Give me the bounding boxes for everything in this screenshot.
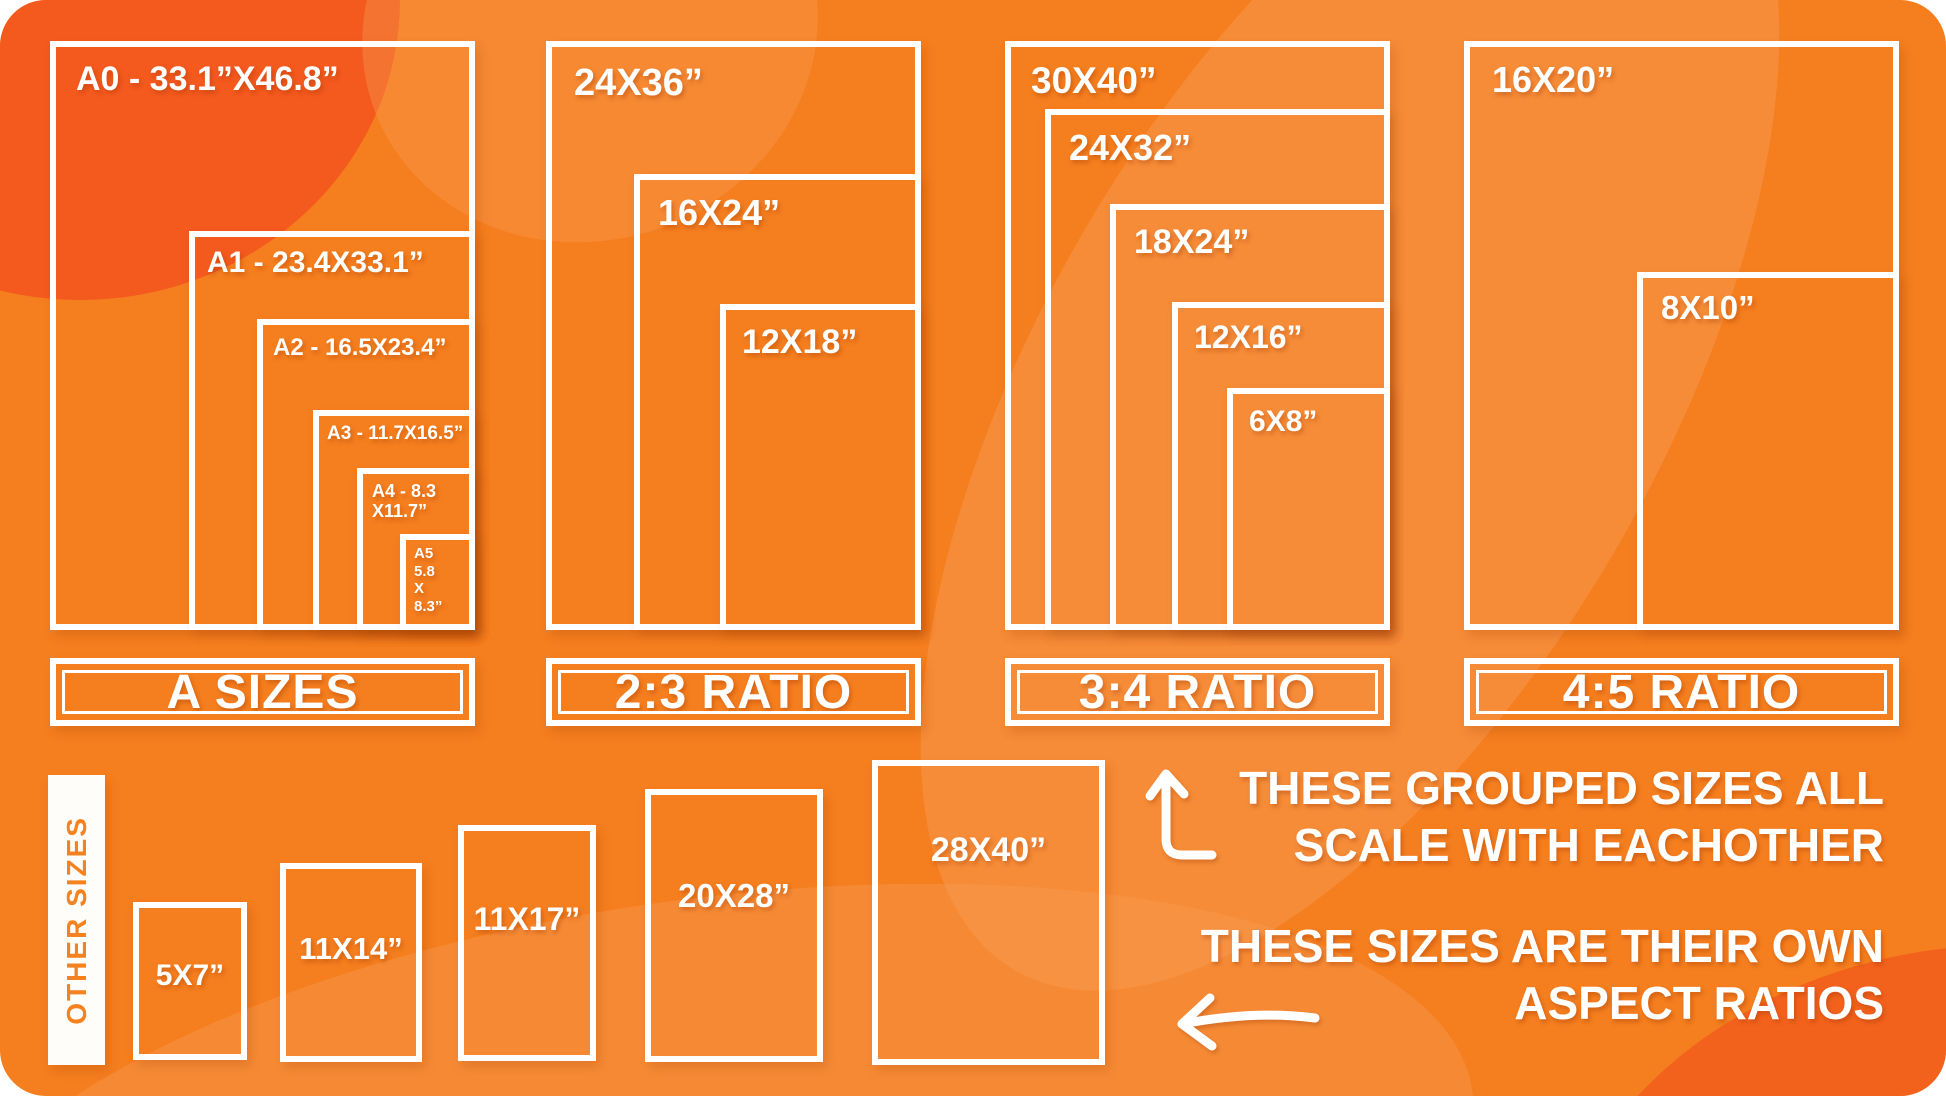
size-label-24x32: 24X32” <box>1069 129 1191 168</box>
note-line: THESE GROUPED SIZES ALL <box>1239 760 1884 817</box>
size-box-6x8: 6X8” <box>1227 388 1390 630</box>
size-label-a0: A0 - 33.1”X46.8” <box>76 61 339 98</box>
size-label-8x10: 8X10” <box>1661 290 1755 326</box>
group-footer-2-3-ratio: 2:3 RATIO <box>546 658 921 726</box>
size-label-16x24: 16X24” <box>658 194 780 233</box>
size-label-5x7: 5X7” <box>156 960 224 1054</box>
size-label-a1: A1 - 23.4X33.1” <box>207 247 424 279</box>
size-label-30x40: 30X40” <box>1031 61 1157 101</box>
other-sizes-banner: OTHER SIZES <box>48 775 105 1065</box>
size-label-11x14: 11X14” <box>299 932 402 1056</box>
content-layer: A0 - 33.1”X46.8” A1 - 23.4X33.1” A2 - 16… <box>0 0 1946 1096</box>
note-line: ASPECT RATIOS <box>1201 975 1884 1032</box>
size-label-28x40: 28X40” <box>931 832 1046 1059</box>
other-sizes-label: OTHER SIZES <box>61 816 93 1025</box>
size-label-a4: A4 - 8.3 X11.7” <box>372 481 436 521</box>
size-box-a5: A5 5.8 X 8.3” <box>400 534 475 630</box>
size-label-12x18: 12X18” <box>742 324 857 361</box>
size-box-12x18: 12X18” <box>720 304 921 630</box>
curved-up-arrow-icon <box>1142 762 1220 860</box>
group-footer-label: 3:4 RATIO <box>1079 665 1316 720</box>
size-label-24x36: 24X36” <box>574 63 703 104</box>
size-label-a5: A5 5.8 X 8.3” <box>414 545 442 616</box>
group-footer-label: 4:5 RATIO <box>1563 665 1800 720</box>
size-box-11x14: 11X14” <box>280 863 422 1062</box>
infographic-canvas: A0 - 33.1”X46.8” A1 - 23.4X33.1” A2 - 16… <box>0 0 1946 1096</box>
group-footer-3-4-ratio: 3:4 RATIO <box>1005 658 1390 726</box>
size-box-11x17: 11X17” <box>458 825 596 1061</box>
size-box-24x36: 24X36” 16X24” 12X18” <box>546 41 921 630</box>
note-line: SCALE WITH EACHOTHER <box>1239 817 1884 874</box>
size-box-28x40: 28X40” <box>872 760 1105 1065</box>
size-label-11x17: 11X17” <box>474 902 581 1055</box>
size-box-5x7: 5X7” <box>133 902 247 1060</box>
size-label-18x24: 18X24” <box>1134 224 1249 261</box>
size-box-16x20: 16X20” 8X10” <box>1464 41 1899 630</box>
size-box-a0: A0 - 33.1”X46.8” A1 - 23.4X33.1” A2 - 16… <box>50 41 475 630</box>
size-label-16x20: 16X20” <box>1492 61 1614 100</box>
size-label-6x8: 6X8” <box>1249 406 1317 438</box>
size-box-20x28: 20X28” <box>645 789 823 1062</box>
group-footer-a-sizes: A SIZES <box>50 658 475 726</box>
size-label-a2: A2 - 16.5X23.4” <box>273 335 446 361</box>
note-grouped-sizes: THESE GROUPED SIZES ALL SCALE WITH EACHO… <box>1239 760 1884 874</box>
note-line: THESE SIZES ARE THEIR OWN <box>1201 918 1884 975</box>
group-footer-4-5-ratio: 4:5 RATIO <box>1464 658 1899 726</box>
note-own-aspect-ratios: THESE SIZES ARE THEIR OWN ASPECT RATIOS <box>1201 918 1884 1032</box>
size-box-8x10: 8X10” <box>1637 272 1899 630</box>
group-footer-label: 2:3 RATIO <box>615 665 852 720</box>
size-label-a3: A3 - 11.7X16.5” <box>327 424 463 445</box>
size-label-20x28: 20X28” <box>678 878 790 1056</box>
size-label-12x16: 12X16” <box>1194 320 1303 355</box>
size-box-30x40: 30X40” 24X32” 18X24” 12X16” 6X8” <box>1005 41 1390 630</box>
group-footer-label: A SIZES <box>167 665 359 720</box>
